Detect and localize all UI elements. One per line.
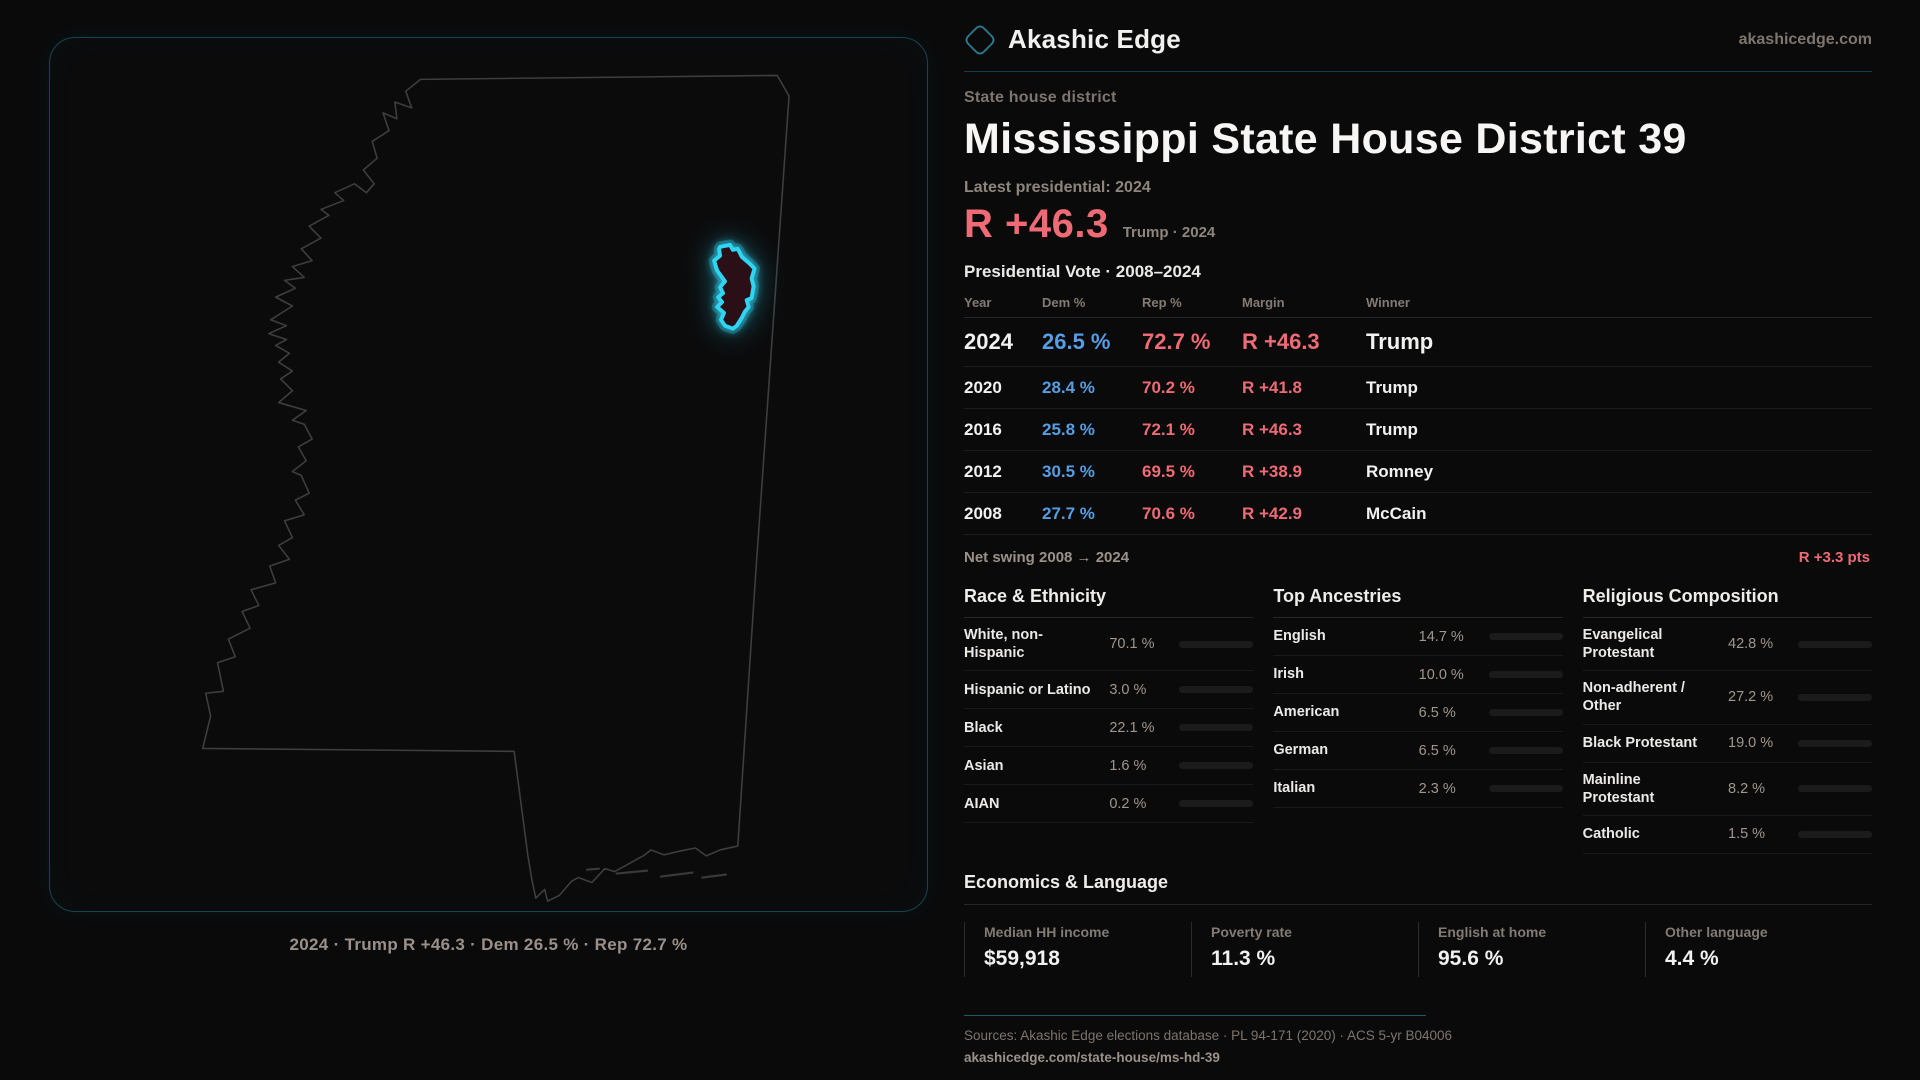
margin-caption: Trump · 2024 [1123, 224, 1216, 241]
list-item: American 6.5 % [1273, 694, 1562, 732]
col-rep: Rep % [1142, 295, 1242, 310]
stat-poverty-rate: Poverty rate 11.3 % [1191, 922, 1418, 977]
list-item: German 6.5 % [1273, 732, 1562, 770]
section-title: Religious Composition [1583, 580, 1872, 618]
table-row: 2016 25.8 % 72.1 % R +46.3 Trump [964, 409, 1872, 451]
col-year: Year [964, 295, 1042, 310]
table-row: 2020 28.4 % 70.2 % R +41.8 Trump [964, 367, 1872, 409]
list-item: English 14.7 % [1273, 618, 1562, 656]
brand-site-link[interactable]: akashicedge.com [1739, 31, 1872, 49]
col-margin: Margin [1242, 295, 1366, 310]
section-title: Economics & Language [964, 872, 1872, 905]
brand-header: Akashic Edge akashicedge.com [964, 24, 1872, 72]
bar-track [1179, 800, 1253, 807]
latest-presidential-label: Latest presidential: 2024 [964, 179, 1872, 197]
bar-track [1179, 724, 1253, 731]
stat-english-at-home: English at home 95.6 % [1418, 922, 1645, 977]
cell-rep: 72.1 % [1142, 420, 1242, 440]
bar-track [1179, 686, 1253, 693]
list-item: Asian 1.6 % [964, 747, 1253, 785]
cell-rep: 69.5 % [1142, 462, 1242, 482]
sources-divider [964, 1015, 1426, 1016]
list-item: White, non-Hispanic 70.1 % [964, 618, 1253, 671]
margin-value: R +46.3 [964, 202, 1109, 247]
bar-track [1798, 831, 1872, 838]
map-caption: 2024 · Trump R +46.3 · Dem 26.5 % · Rep … [49, 935, 928, 955]
district-39-shape [714, 245, 754, 329]
cell-year: 2012 [964, 462, 1042, 482]
cell-margin: R +46.3 [1242, 420, 1366, 440]
kicker-label: State house district [964, 89, 1872, 107]
cell-winner: Trump [1366, 420, 1872, 440]
state-outline-path [203, 75, 789, 901]
list-item: Mainline Protestant 8.2 % [1583, 763, 1872, 816]
cell-year: 2024 [964, 329, 1042, 355]
vote-table-header: Year Dem % Rep % Margin Winner [964, 288, 1872, 318]
section-title: Top Ancestries [1273, 580, 1562, 618]
cell-winner: Romney [1366, 462, 1872, 482]
table-row: 2008 27.7 % 70.6 % R +42.9 McCain [964, 493, 1872, 535]
bar-track [1179, 762, 1253, 769]
list-item: Irish 10.0 % [1273, 656, 1562, 694]
map-panel-wrap: 2024 · Trump R +46.3 · Dem 26.5 % · Rep … [49, 37, 928, 955]
page-title: Mississippi State House District 39 [964, 115, 1872, 164]
cell-dem: 27.7 % [1042, 504, 1142, 524]
mississippi-map-svg [50, 38, 927, 911]
cell-year: 2020 [964, 378, 1042, 398]
table-row: 2024 26.5 % 72.7 % R +46.3 Trump [964, 318, 1872, 367]
bar-track [1798, 785, 1872, 792]
permalink[interactable]: akashicedge.com/state-house/ms-hd-39 [964, 1050, 1872, 1065]
ancestries-section: Top Ancestries English 14.7 % Irish 10.0… [1273, 580, 1562, 854]
list-item: Non-adherent / Other 27.2 % [1583, 671, 1872, 724]
bar-track [1798, 740, 1872, 747]
cell-dem: 26.5 % [1042, 329, 1142, 355]
headline-margin: R +46.3 Trump · 2024 [964, 202, 1872, 247]
bar-track [1489, 747, 1563, 754]
table-row: 2012 30.5 % 69.5 % R +38.9 Romney [964, 451, 1872, 493]
section-title: Race & Ethnicity [964, 580, 1253, 618]
bar-track [1798, 694, 1872, 701]
list-item: Evangelical Protestant 42.8 % [1583, 618, 1872, 671]
bar-track [1489, 633, 1563, 640]
stat-other-language: Other language 4.4 % [1645, 922, 1872, 977]
list-item: Italian 2.3 % [1273, 770, 1562, 808]
religion-section: Religious Composition Evangelical Protes… [1583, 580, 1872, 854]
cell-winner: McCain [1366, 504, 1872, 524]
cell-margin: R +46.3 [1242, 329, 1366, 355]
sources-footer: Sources: Akashic Edge elections database… [964, 1015, 1872, 1065]
economics-section: Economics & Language Median HH income $5… [964, 872, 1872, 977]
vote-table: Year Dem % Rep % Margin Winner 2024 26.5… [964, 288, 1872, 535]
col-winner: Winner [1366, 295, 1872, 310]
sources-text: Sources: Akashic Edge elections database… [964, 1028, 1872, 1043]
stat-median-income: Median HH income $59,918 [964, 922, 1191, 977]
bar-track [1798, 641, 1872, 648]
district-map [49, 37, 928, 912]
list-item: Black Protestant 19.0 % [1583, 725, 1872, 763]
cell-margin: R +41.8 [1242, 378, 1366, 398]
bar-track [1489, 709, 1563, 716]
net-swing-label: Net swing 2008 → 2024 [964, 549, 1129, 566]
demographics-grid: Race & Ethnicity White, non-Hispanic 70.… [964, 580, 1872, 854]
vote-table-title: Presidential Vote · 2008–2024 [964, 262, 1872, 282]
race-ethnicity-section: Race & Ethnicity White, non-Hispanic 70.… [964, 580, 1253, 854]
bar-track [1489, 671, 1563, 678]
col-dem: Dem % [1042, 295, 1142, 310]
cell-dem: 30.5 % [1042, 462, 1142, 482]
net-swing-value: R +3.3 pts [1799, 549, 1870, 566]
cell-rep: 70.2 % [1142, 378, 1242, 398]
list-item: AIAN 0.2 % [964, 785, 1253, 823]
economics-stats: Median HH income $59,918 Poverty rate 11… [964, 922, 1872, 977]
cell-year: 2016 [964, 420, 1042, 440]
cell-winner: Trump [1366, 329, 1872, 355]
diamond-logo-icon [963, 23, 997, 57]
content-column: Akashic Edge akashicedge.com State house… [964, 24, 1872, 1065]
list-item: Hispanic or Latino 3.0 % [964, 671, 1253, 709]
brand-name: Akashic Edge [1008, 24, 1739, 55]
cell-rep: 70.6 % [1142, 504, 1242, 524]
cell-dem: 25.8 % [1042, 420, 1142, 440]
list-item: Catholic 1.5 % [1583, 816, 1872, 854]
net-swing-row: Net swing 2008 → 2024 R +3.3 pts [964, 535, 1872, 576]
bar-track [1489, 785, 1563, 792]
cell-rep: 72.7 % [1142, 329, 1242, 355]
cell-dem: 28.4 % [1042, 378, 1142, 398]
bar-track [1179, 641, 1253, 648]
cell-winner: Trump [1366, 378, 1872, 398]
cell-margin: R +42.9 [1242, 504, 1366, 524]
list-item: Black 22.1 % [964, 709, 1253, 747]
cell-year: 2008 [964, 504, 1042, 524]
cell-margin: R +38.9 [1242, 462, 1366, 482]
